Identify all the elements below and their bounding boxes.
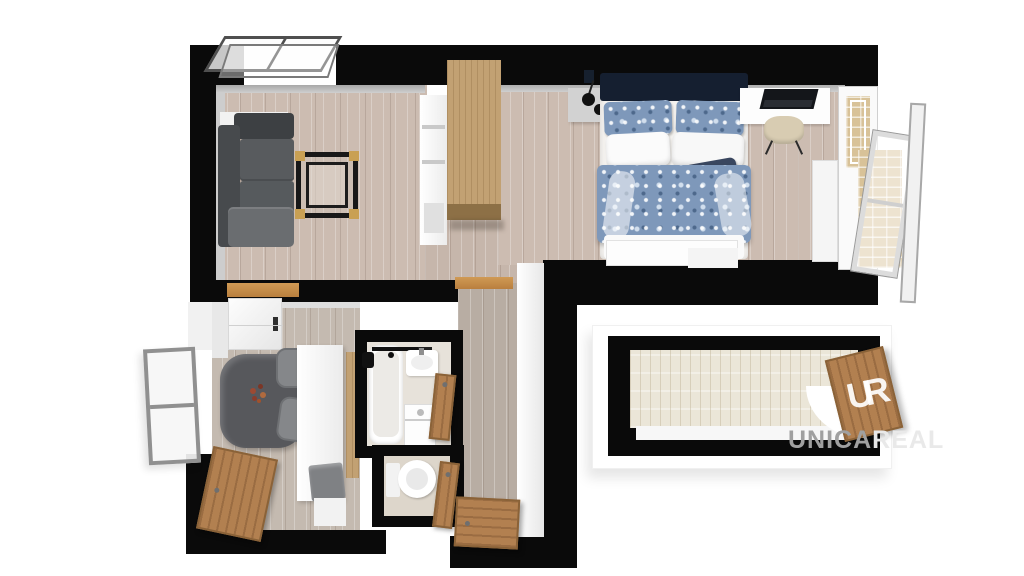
coffee-table xyxy=(296,152,358,218)
kitchen-bottom-wall xyxy=(186,530,386,554)
coffee-table-glass xyxy=(306,162,348,208)
floor-plan-scene: UR UNICAREAL xyxy=(0,0,1024,576)
radiator xyxy=(812,160,838,262)
shower-mixer xyxy=(362,352,374,368)
bathtub-basin xyxy=(373,351,399,437)
closet-shelf xyxy=(422,125,445,129)
bed xyxy=(600,73,748,259)
pillow-blue xyxy=(603,100,672,136)
kitchen-cabinet xyxy=(228,298,282,350)
bathtub xyxy=(369,345,403,444)
watermark-text-secondary: REAL xyxy=(872,426,944,454)
gold-corner xyxy=(349,151,359,161)
wardrobe-shadow xyxy=(450,220,504,230)
door-handle xyxy=(214,487,220,493)
lamp-sphere xyxy=(582,93,595,106)
flower xyxy=(258,384,263,389)
watermark: UNICAREAL xyxy=(788,428,944,453)
living-open-window-frame xyxy=(218,44,339,78)
entrance-door xyxy=(454,496,521,549)
wardrobe-top xyxy=(447,60,501,204)
desk-chair-seat xyxy=(764,116,804,144)
sofa-seat-cushion xyxy=(240,139,294,181)
toilet-seat xyxy=(406,468,428,490)
bed-bench-step xyxy=(688,248,738,268)
window-rail xyxy=(150,403,194,409)
wardrobe-front xyxy=(447,204,501,220)
casement-rail xyxy=(867,199,903,209)
flower xyxy=(260,392,266,398)
gold-corner xyxy=(349,209,359,219)
white-closet xyxy=(420,95,447,245)
gold-corner xyxy=(295,209,305,219)
watermark-text-primary: UNICA xyxy=(788,426,872,454)
door-handle xyxy=(465,521,470,526)
kitchen-threshold xyxy=(227,283,299,297)
sofa xyxy=(218,113,294,247)
sofa-headrest xyxy=(234,113,294,139)
left-wall-upper xyxy=(190,45,216,302)
hallway-threshold xyxy=(455,277,513,289)
flower xyxy=(257,399,261,403)
kitchen-upper-white-wall xyxy=(188,302,212,352)
open-white-door-panel xyxy=(517,263,544,537)
kitchen-box xyxy=(314,498,346,526)
kitchen-open-window xyxy=(143,347,201,466)
hallway-right-wall xyxy=(543,260,577,550)
closet-shelf xyxy=(422,160,445,164)
kitchen-stool xyxy=(308,462,346,501)
laptop xyxy=(760,89,819,109)
gold-corner xyxy=(295,151,305,161)
kitchen-left-wall-band xyxy=(210,300,228,358)
faucet xyxy=(419,348,424,355)
pillow-blue xyxy=(675,100,744,136)
door-handle xyxy=(442,382,447,387)
washer-dial xyxy=(417,409,424,416)
shower-head xyxy=(388,352,394,358)
door-handle xyxy=(445,472,451,478)
cabinet-handle xyxy=(273,317,278,331)
bed-headboard xyxy=(600,73,748,101)
flower xyxy=(250,388,256,394)
sink-basin xyxy=(411,355,433,370)
laptop-keyboard xyxy=(763,100,813,107)
bathroom-sink xyxy=(406,350,438,376)
closet-box xyxy=(424,203,444,233)
pillow-white xyxy=(605,131,671,168)
cabinet-seam xyxy=(229,325,283,326)
sofa-chaise xyxy=(228,207,294,247)
toilet-bowl xyxy=(398,460,436,498)
